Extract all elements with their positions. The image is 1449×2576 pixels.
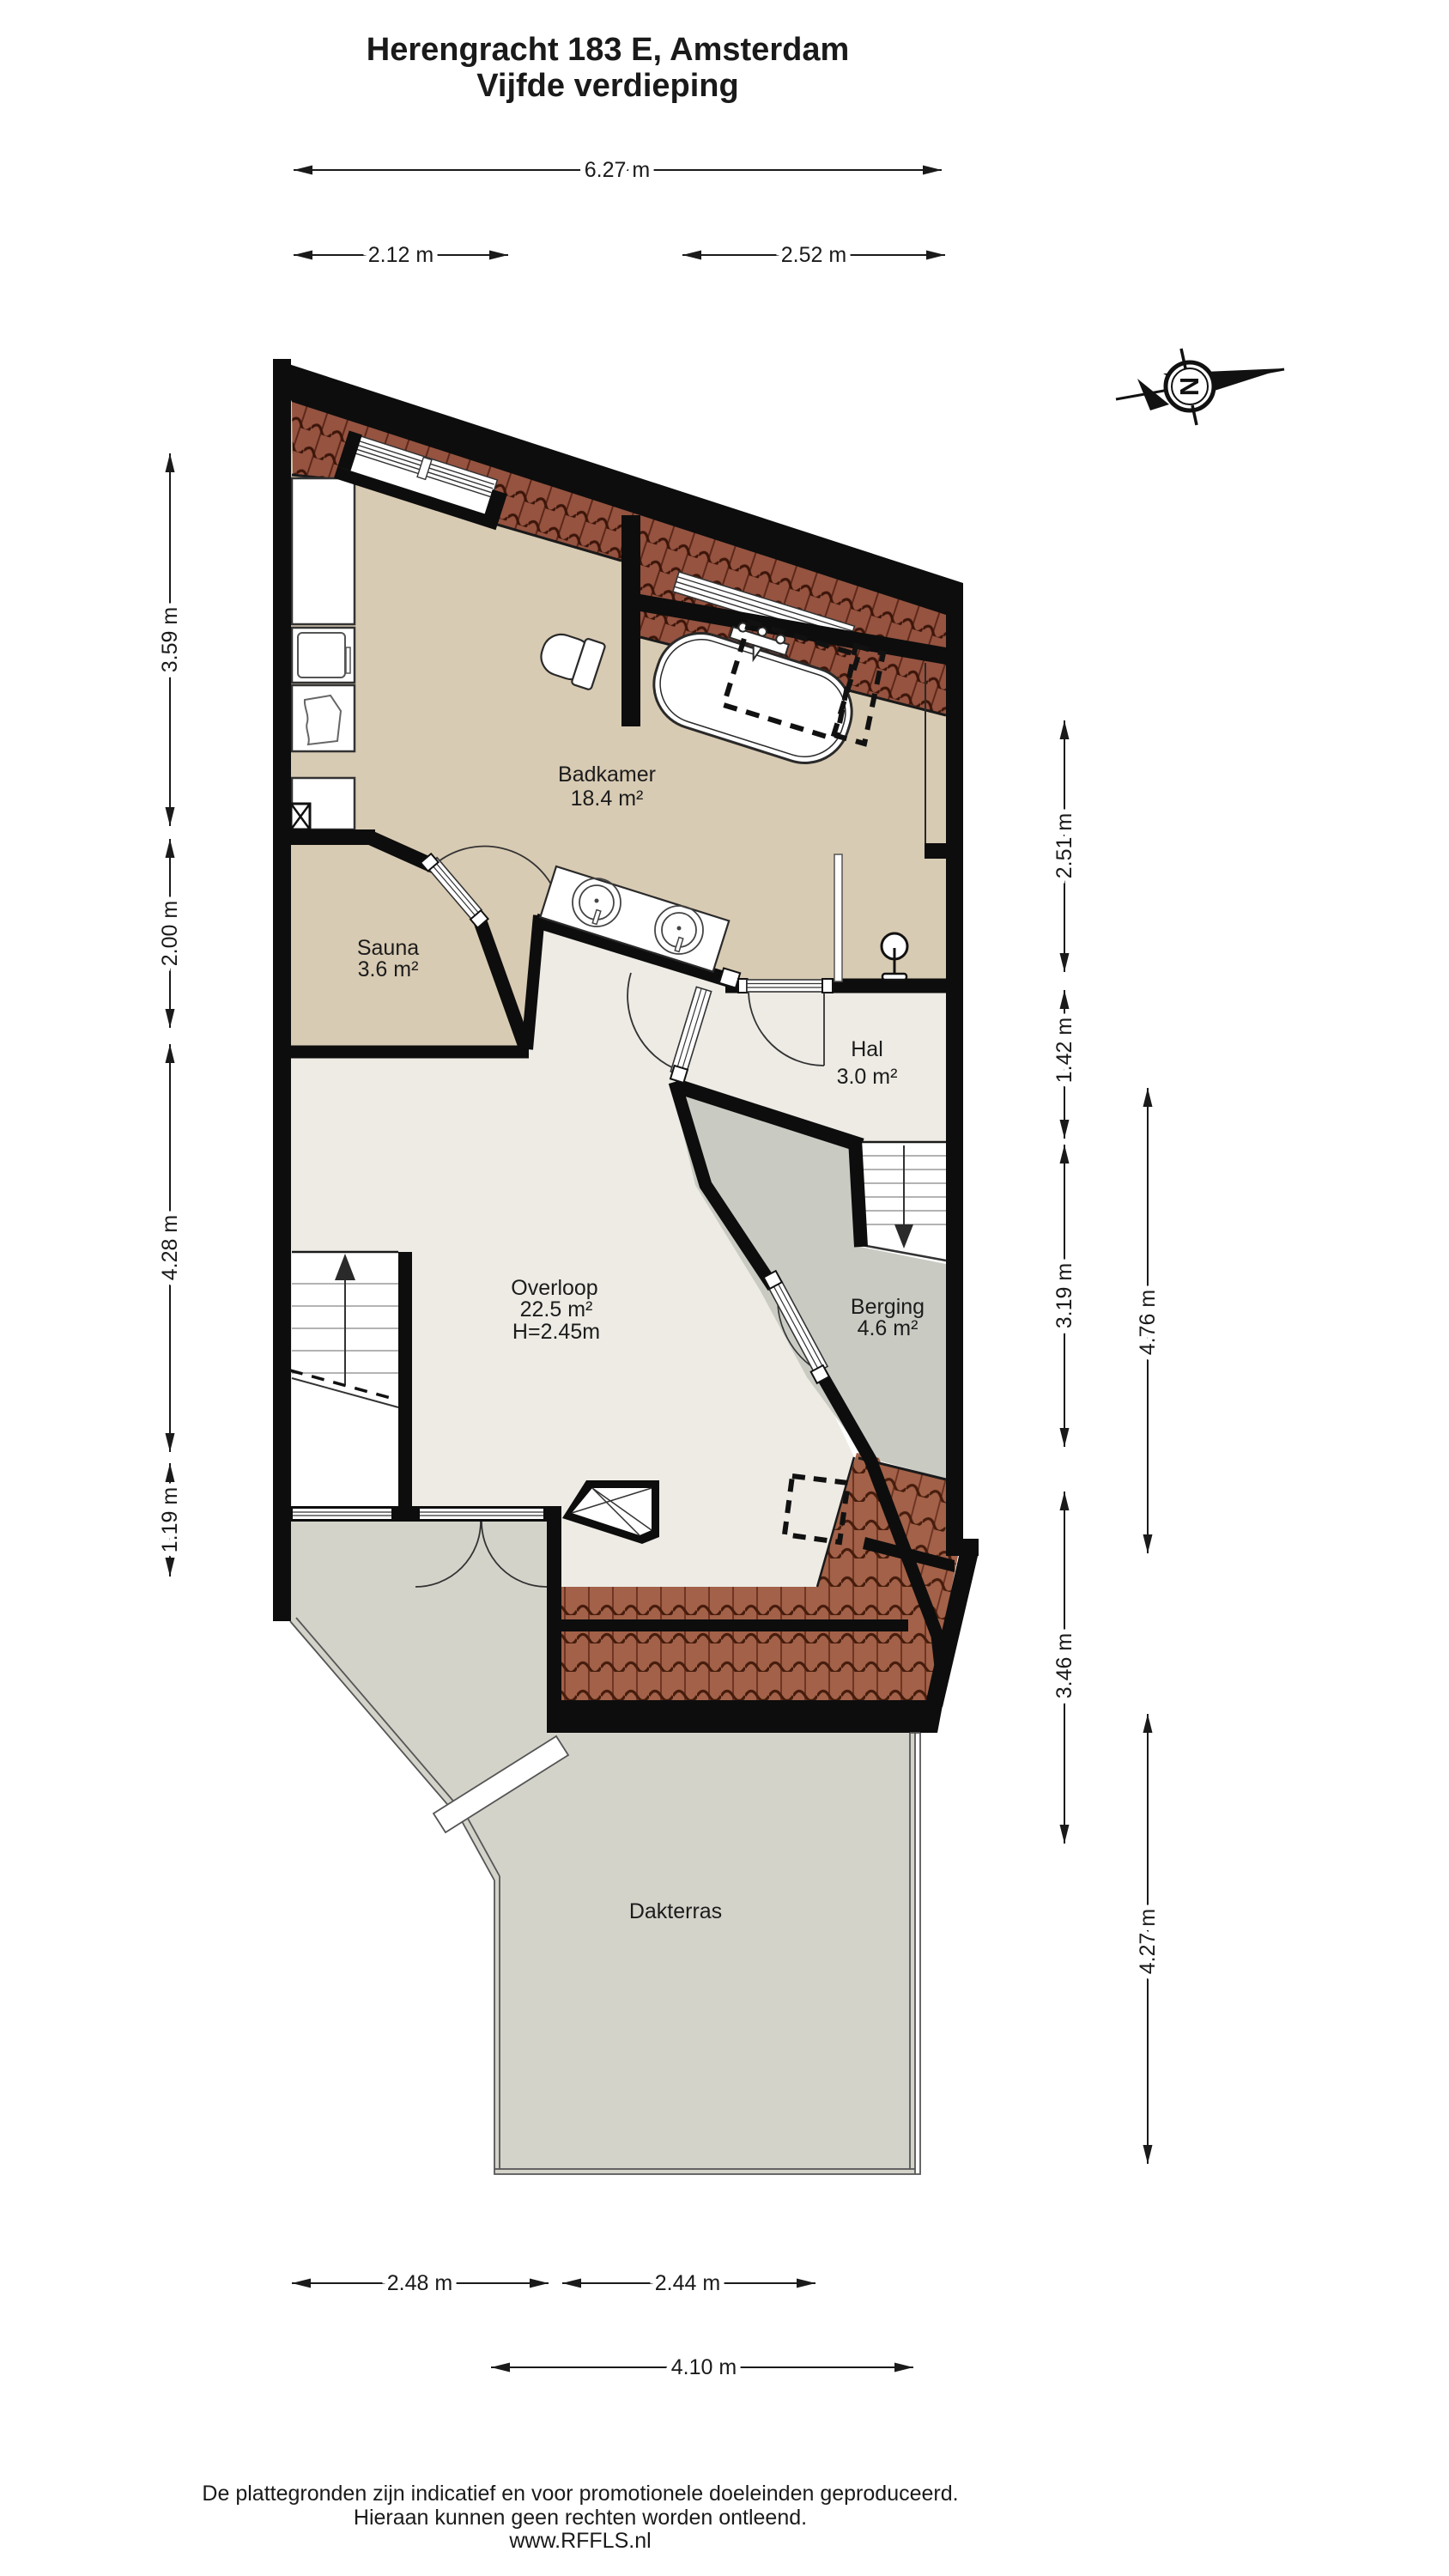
svg-text:2.51 m: 2.51 m [1052, 813, 1076, 878]
svg-text:Dakterras: Dakterras [629, 1899, 722, 1923]
svg-text:2.52 m: 2.52 m [781, 243, 846, 267]
svg-text:Sauna: Sauna [357, 936, 419, 960]
svg-text:4.6 m²: 4.6 m² [858, 1316, 919, 1340]
svg-text:Herengracht 183 E, Amsterdam: Herengracht 183 E, Amsterdam [367, 32, 850, 68]
svg-text:2.12 m: 2.12 m [368, 243, 433, 267]
svg-text:4.10 m: 4.10 m [671, 2355, 737, 2379]
svg-text:4.28 m: 4.28 m [158, 1215, 182, 1280]
svg-text:Hieraan kunnen geen rechten wo: Hieraan kunnen geen rechten worden ontle… [354, 2506, 807, 2530]
svg-text:Berging: Berging [851, 1295, 925, 1319]
svg-text:Badkamer: Badkamer [558, 762, 656, 787]
svg-text:3.59 m: 3.59 m [158, 607, 182, 672]
svg-text:www.RFFLS.nl: www.RFFLS.nl [508, 2529, 651, 2553]
svg-text:3.0 m²: 3.0 m² [837, 1065, 898, 1089]
svg-text:H=2.45m: H=2.45m [512, 1320, 600, 1344]
svg-text:18.4 m²: 18.4 m² [571, 787, 644, 811]
svg-text:Hal: Hal [851, 1037, 883, 1061]
svg-text:4.27 m: 4.27 m [1136, 1909, 1160, 1974]
svg-text:2.44 m: 2.44 m [655, 2271, 720, 2295]
svg-text:2.48 m: 2.48 m [387, 2271, 452, 2295]
svg-text:Vijfde verdieping: Vijfde verdieping [476, 68, 738, 104]
svg-text:1.42 m: 1.42 m [1052, 1018, 1076, 1083]
svg-text:3.19 m: 3.19 m [1052, 1263, 1076, 1328]
svg-text:3.46 m: 3.46 m [1052, 1633, 1076, 1698]
svg-text:3.6 m²: 3.6 m² [358, 957, 419, 981]
svg-text:Overloop: Overloop [511, 1276, 597, 1300]
svg-text:1.19 m: 1.19 m [158, 1487, 182, 1552]
svg-text:6.27 m: 6.27 m [585, 158, 650, 182]
svg-text:22.5 m²: 22.5 m² [520, 1297, 593, 1321]
svg-text:De plattegronden zijn indicati: De plattegronden zijn indicatief en voor… [202, 2482, 958, 2506]
svg-text:N: N [1174, 377, 1204, 396]
svg-text:4.76 m: 4.76 m [1136, 1290, 1160, 1355]
svg-text:2.00 m: 2.00 m [158, 901, 182, 966]
